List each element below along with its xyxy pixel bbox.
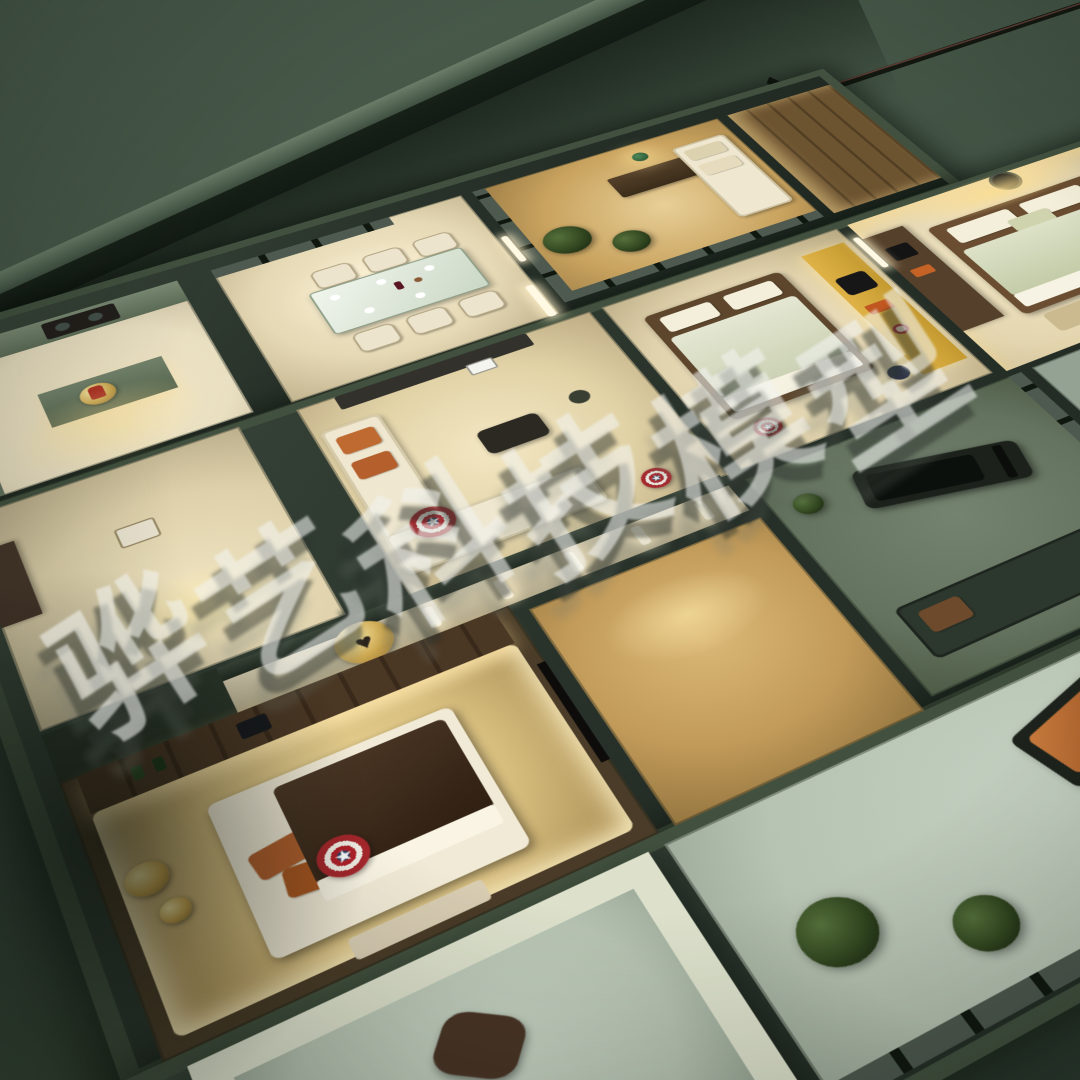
treadmill [850,439,1036,510]
treadmill-belt [864,454,986,502]
wine-bottle [393,281,405,290]
kitchen-counter-west [0,368,5,511]
cushion [335,426,384,456]
treadmill-console [991,445,1019,478]
potted-plant [606,226,658,256]
shield-on-floor: ★ [636,464,677,492]
plate [375,278,388,286]
shield-decor: ★ [748,414,789,440]
led-strip [562,551,585,573]
dark-sofa [893,520,1080,660]
heart-icon: ♥ [351,630,378,655]
orange-item [909,264,936,278]
decor-item [413,276,424,282]
photo-scene: ★ ★ ★ [0,0,1080,1080]
cushion [916,595,975,633]
potted-plant [535,221,600,259]
lounge-chair [1008,669,1080,789]
topiary-ball [781,884,896,981]
plate [329,294,342,302]
topiary-ball [939,885,1033,963]
wall-art [834,270,880,296]
cushion [350,450,400,481]
floor-pouf [883,363,915,382]
plate [363,306,376,314]
potted-plant [787,490,830,519]
led-strip [492,578,514,600]
plate [423,264,436,272]
led-strip [630,525,653,546]
wall-clock [889,322,912,336]
chair-cushion [1027,683,1080,775]
wall-art [884,242,920,262]
brown-pillow [428,1009,530,1080]
kitchen-island [37,356,178,428]
banker-lamp [629,151,651,163]
led-strip [421,606,443,629]
plate [414,291,427,299]
led-strip [693,500,716,520]
bench [113,517,162,550]
orange-box [864,298,896,315]
cushion [697,155,744,176]
